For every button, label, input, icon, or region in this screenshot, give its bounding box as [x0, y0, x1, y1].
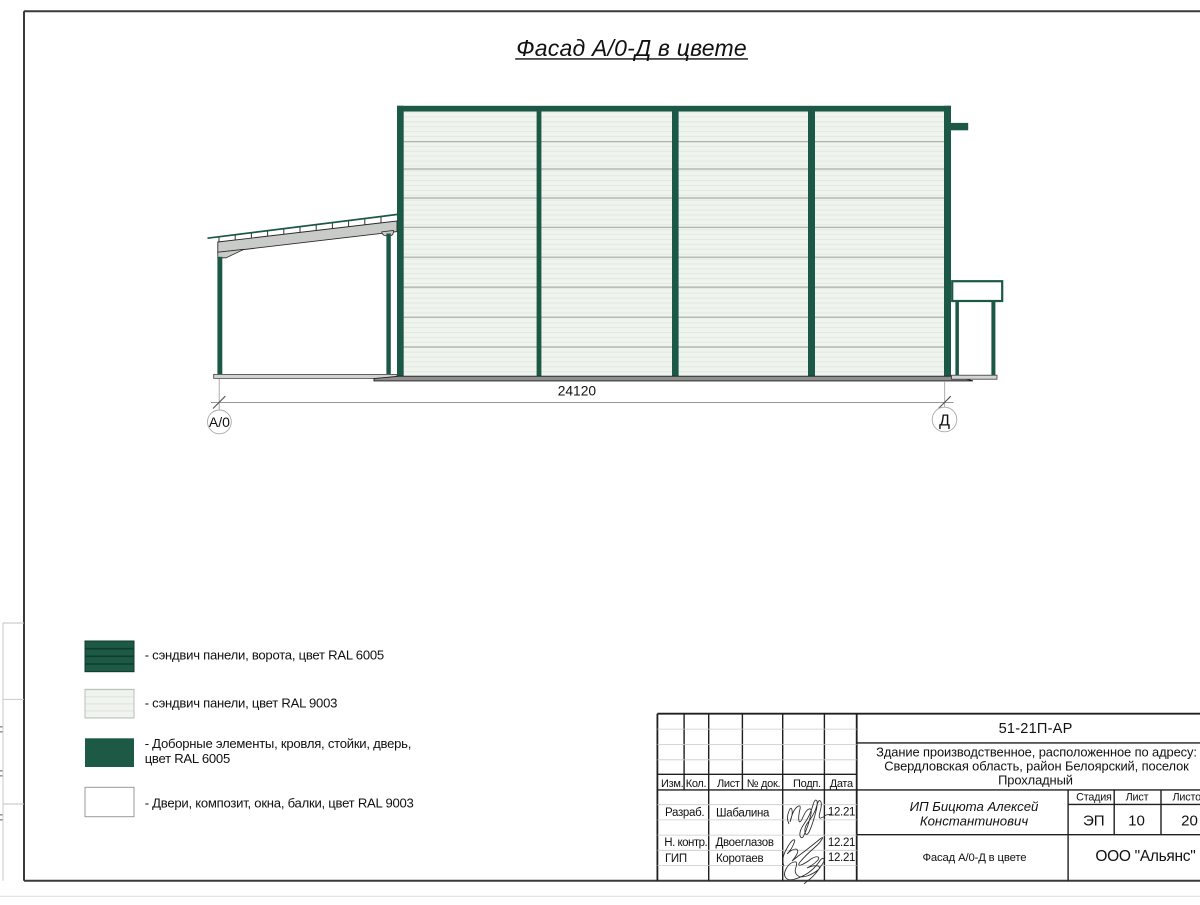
svg-text:12.21: 12.21 — [828, 852, 855, 864]
svg-text:Фасад А/0-Д в цвете: Фасад А/0-Д в цвете — [516, 35, 747, 61]
svg-text:- Доборные элементы, кровля, с: - Доборные элементы, кровля, стойки, две… — [145, 736, 411, 751]
svg-text:12.21: 12.21 — [828, 837, 855, 849]
svg-text:Н. контр.: Н. контр. — [664, 837, 707, 849]
svg-text:Листов: Листов — [1173, 791, 1200, 803]
svg-text:ЭП: ЭП — [1083, 812, 1105, 829]
svg-text:ИП Бицюта Алексей: ИП Бицюта Алексей — [910, 799, 1039, 814]
svg-text:Стадия: Стадия — [1076, 791, 1112, 803]
svg-text:Здание производственное, распо: Здание производственное, расположенное п… — [876, 744, 1197, 759]
svg-text:ООО "Альянс": ООО "Альянс" — [1095, 848, 1195, 865]
svg-text:10: 10 — [1128, 812, 1145, 829]
svg-text:24120: 24120 — [558, 383, 597, 398]
svg-text:Дата: Дата — [830, 778, 854, 790]
svg-text:№ док.: № док. — [747, 778, 781, 790]
svg-text:- сэндвич панели, цвет RAL 900: - сэндвич панели, цвет RAL 9003 — [145, 696, 337, 711]
svg-text:Подп.: Подп. — [793, 778, 821, 790]
svg-text:ГИП: ГИП — [665, 853, 687, 865]
svg-text:Д: Д — [939, 413, 950, 430]
svg-text:- сэндвич панели, ворота, цвет: - сэндвич панели, ворота, цвет RAL 6005 — [145, 648, 384, 663]
svg-text:Фасад А/0-Д в цвете: Фасад А/0-Д в цвете — [922, 852, 1026, 864]
svg-text:Двоеглазов: Двоеглазов — [716, 837, 774, 849]
svg-text:Изм.: Изм. — [661, 778, 684, 790]
svg-text:А/0: А/0 — [209, 414, 230, 430]
svg-text:Свердловская область, район Бе: Свердловская область, район Белоярский, … — [884, 758, 1189, 773]
svg-text:12.21: 12.21 — [828, 807, 855, 819]
svg-text:Лист: Лист — [1126, 791, 1149, 803]
svg-text:Лист: Лист — [717, 778, 740, 790]
svg-text:Коротаев: Коротаев — [716, 853, 763, 865]
svg-text:Шабалина: Шабалина — [716, 807, 770, 819]
svg-text:Кол.: Кол. — [686, 778, 707, 790]
svg-text:Прохладный: Прохладный — [998, 773, 1073, 788]
svg-text:Константинович: Константинович — [920, 813, 1029, 828]
svg-text:20: 20 — [1181, 812, 1198, 829]
svg-text:51-21П-АР: 51-21П-АР — [999, 721, 1073, 737]
svg-text:цвет RAL 6005: цвет RAL 6005 — [145, 751, 230, 766]
svg-text:Разраб.: Разраб. — [665, 807, 704, 819]
svg-text:- Двери, композит, окна, балки: - Двери, композит, окна, балки, цвет RAL… — [145, 795, 414, 810]
